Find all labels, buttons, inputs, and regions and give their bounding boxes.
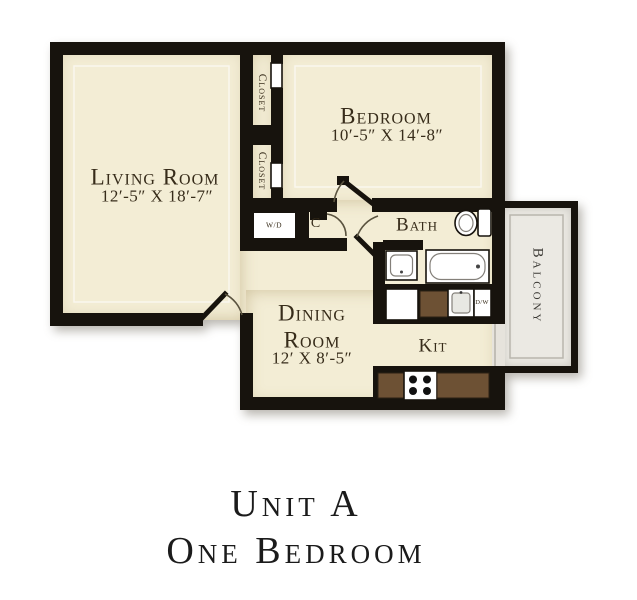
bath-partition-wall <box>383 240 423 250</box>
left-wall <box>50 42 63 326</box>
dining-left-wall <box>240 313 253 410</box>
bedroom-bottom-wall-left <box>240 198 337 212</box>
bedroom-dims: 10′-5″ X 14′-8″ <box>331 127 443 144</box>
closet-bottom-label: Closet <box>255 152 267 191</box>
kitchen-counter-1 <box>420 291 448 317</box>
coat-closet-label: C <box>311 217 321 231</box>
toilet-tank-icon <box>478 209 491 236</box>
kitchen-counter-3 <box>437 373 489 398</box>
stove-icon <box>404 371 437 400</box>
plan-title-line2: One Bedroom <box>166 532 425 570</box>
balcony-top-wall <box>498 201 578 208</box>
closet-top-door-leaf <box>271 63 282 88</box>
dining-room-label-line1: Dining <box>278 302 346 325</box>
bath-label: Bath <box>396 216 438 235</box>
vanity-faucet-dot <box>400 271 403 274</box>
closet-bottom-door-leaf <box>271 163 282 188</box>
living-room-label: Living Room <box>91 166 220 189</box>
washer-dryer-label: W/D <box>266 221 282 229</box>
bedroom-door-leaf <box>344 181 372 203</box>
kitchen-label: Kit <box>419 337 448 356</box>
floorplan-image: Living Room 12′-5″ X 18′-7″ Bedroom 10′-… <box>0 0 637 600</box>
balcony-right-wall <box>571 201 578 373</box>
bathtub-faucet-dot <box>476 265 480 269</box>
coat-closet-bottom-wall <box>296 238 347 251</box>
stove-burner <box>409 376 417 384</box>
entry-door-arc <box>225 294 242 315</box>
stove-burner <box>423 387 431 395</box>
stove-burner <box>409 387 417 395</box>
right-wall <box>492 42 505 323</box>
bedroom-label: Bedroom <box>340 105 432 128</box>
kitchen-faucet-dot <box>460 291 463 294</box>
kitchen-counter-2 <box>378 373 404 398</box>
stove-burner <box>423 376 431 384</box>
kitchen-sink-basin <box>452 293 470 313</box>
plan-title-line1: Unit A <box>230 485 361 523</box>
balcony-bottom-wall <box>498 366 578 373</box>
living-room-dims: 12′-5″ X 18′-7″ <box>101 188 213 205</box>
coat-closet-door-arc <box>327 214 346 236</box>
dishwasher-label: D/W <box>475 300 489 307</box>
balcony-door-threshold <box>492 323 505 366</box>
closet-divider-wall <box>240 125 283 145</box>
fridge-icon <box>386 289 418 320</box>
balcony-label: Balcony <box>530 248 545 325</box>
closet-top-label: Closet <box>255 74 267 113</box>
living-bottom-wall <box>50 313 203 326</box>
bath-door-arc <box>357 216 378 237</box>
closet-right-wall-a <box>271 42 283 64</box>
dining-room-dims: 12′ X 8′-5″ <box>272 350 352 367</box>
entry-door-leaf <box>203 294 225 317</box>
